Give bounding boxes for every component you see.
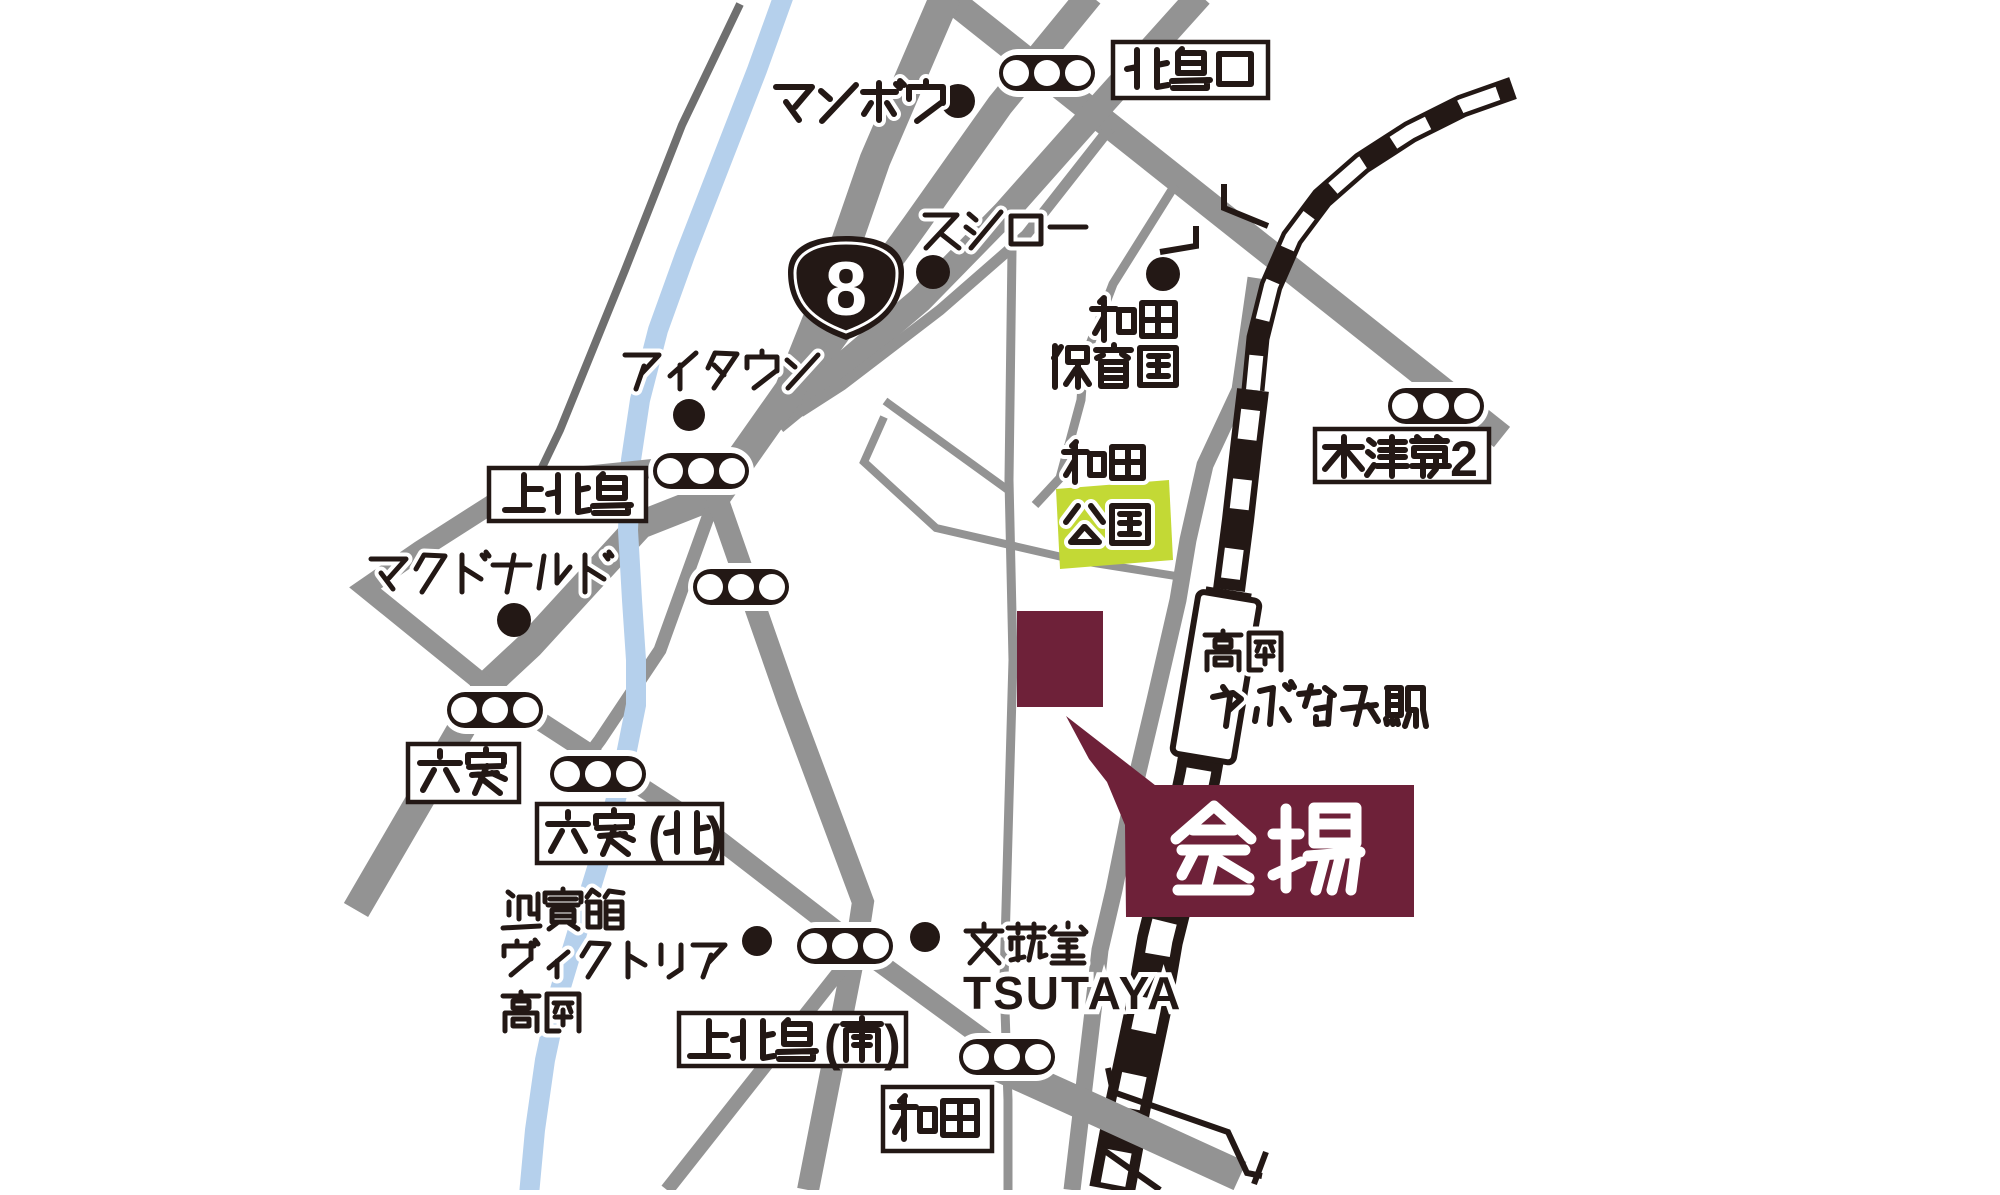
svg-text:): ) xyxy=(706,807,723,865)
svg-text:2: 2 xyxy=(1450,431,1478,487)
svg-text:TSUTAYA: TSUTAYA xyxy=(963,967,1182,1019)
svg-text:(: ( xyxy=(824,1015,841,1071)
svg-text:): ) xyxy=(884,1015,901,1071)
svg-text:(: ( xyxy=(648,807,666,865)
svg-text:8: 8 xyxy=(825,247,867,332)
